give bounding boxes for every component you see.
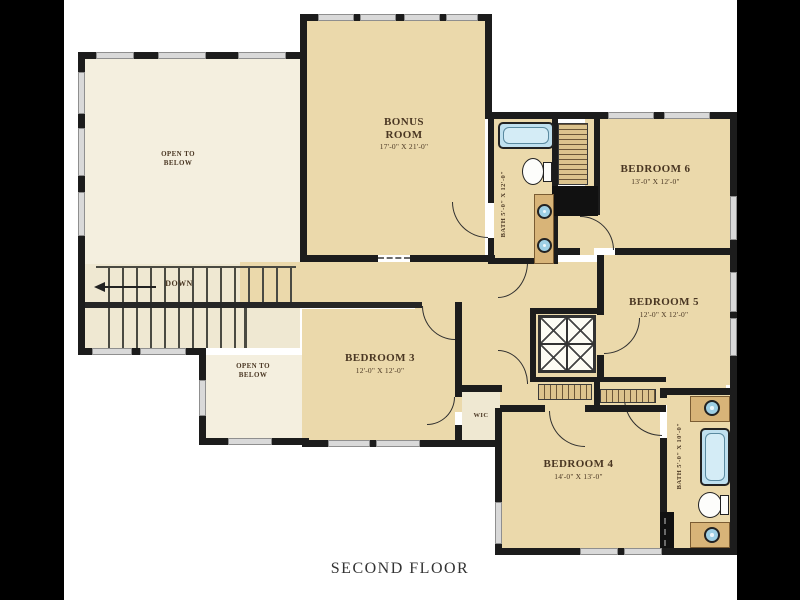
bathtub-icon (700, 428, 730, 486)
sink-icon (704, 400, 720, 416)
window-icon (624, 548, 662, 555)
opening-bonus-dashed (378, 257, 410, 259)
stairs-lower-run (96, 308, 244, 348)
bedroom6-dims: 13'-0" X 12'-0" (588, 177, 723, 186)
laundry-appliances (538, 315, 596, 373)
bath-bottom-label: BATH 5'-0" X 10'-0" (676, 414, 684, 498)
down-label: DOWN (158, 279, 200, 289)
linen-closet-shelves (558, 123, 588, 185)
toilet-icon (522, 158, 544, 185)
window-icon (318, 14, 354, 21)
window-icon (92, 348, 132, 355)
bedroom6-label: BEDROOM 6 13'-0" X 12'-0" (588, 163, 723, 186)
window-icon (78, 128, 85, 176)
plan-sheet: BONUS ROOM 17'-0" X 21'-0" OPEN TO BELOW… (64, 0, 737, 600)
opening-bath-dashed (664, 518, 666, 546)
wall-bath-top-left-upper (488, 119, 494, 203)
bath-top-label: BATH 5'-0" X 12'-0" (500, 162, 508, 246)
bedroom4-label: BEDROOM 4 14'-0" X 13'-0" (506, 458, 651, 481)
bedroom3-dims: 12'-0" X 12'-0" (310, 366, 450, 375)
bedroom3-name: BEDROOM 3 (310, 352, 450, 365)
window-icon (404, 14, 440, 21)
window-icon (158, 52, 206, 59)
bonus-room-dims: 17'-0" X 21'-0" (364, 142, 444, 151)
wic-label: WIC (466, 412, 496, 420)
window-icon (446, 14, 478, 21)
wall-bedroom4-top-right (585, 405, 666, 412)
bedroom4-dims: 14'-0" X 13'-0" (506, 472, 651, 481)
sink-icon (537, 238, 552, 253)
toilet-tank-icon (543, 162, 552, 182)
stair-railing (84, 302, 422, 308)
open-below-bottom-label: OPEN TO BELOW (230, 362, 276, 380)
window-icon (495, 502, 502, 544)
wall-laundry-top (530, 308, 600, 314)
wall-bonus-bottom-right (410, 255, 495, 262)
chase-block-bottom (660, 512, 674, 548)
bonus-room-label: BONUS ROOM 17'-0" X 21'-0" (364, 116, 444, 151)
window-icon (328, 440, 370, 447)
sink-icon (704, 527, 720, 543)
window-icon (608, 112, 654, 119)
window-icon (78, 192, 85, 236)
wall-bedroom3-right-lower (455, 425, 462, 447)
appliance-box-icon (567, 344, 594, 371)
bath-top-dims: 5'-0" X 12'-0" (500, 171, 507, 216)
bath-top-name: BATH (500, 218, 507, 238)
wall-bonus-bottom-left (300, 255, 378, 262)
wall-bedroom6-bottom-left (552, 248, 580, 255)
closet-shelf-left (538, 384, 592, 400)
wall-bedroom4-top-left (500, 405, 545, 412)
window-icon (730, 272, 737, 312)
wall-bonus-right (485, 14, 492, 119)
sink-icon (537, 204, 552, 219)
floor-plan-title: SECOND FLOOR (100, 560, 700, 578)
toilet-icon (698, 492, 722, 518)
down-arrow-shaft (104, 286, 156, 288)
window-icon (580, 548, 618, 555)
closet-shelf-right (600, 389, 656, 403)
appliance-box-icon (540, 344, 567, 371)
window-icon (376, 440, 420, 447)
window-icon (78, 72, 85, 114)
window-icon (228, 438, 272, 445)
bedroom3-label: BEDROOM 3 12'-0" X 12'-0" (310, 352, 450, 375)
appliance-box-icon (567, 317, 594, 344)
bedroom4-name: BEDROOM 4 (506, 458, 651, 471)
bedroom6-name: BEDROOM 6 (588, 163, 723, 176)
appliance-box-icon (540, 317, 567, 344)
chase-block-top (552, 186, 598, 216)
bathtub-icon (498, 122, 554, 149)
window-icon (140, 348, 186, 355)
toilet-tank-icon (720, 495, 729, 515)
wall-bedroom3-right-upper (455, 302, 462, 397)
wall-laundry-left (530, 308, 536, 382)
bath-bottom-name: BATH (676, 470, 683, 490)
bonus-room-name: BONUS ROOM (364, 116, 444, 141)
bath-bottom-dims: 5'-0" X 10'-0" (676, 423, 683, 468)
down-arrow-icon (94, 282, 105, 292)
window-icon (199, 380, 206, 416)
bedroom5-label: BEDROOM 5 12'-0" X 12'-0" (600, 296, 728, 319)
window-icon (238, 52, 286, 59)
wall-bath-bottom-top (660, 388, 737, 395)
window-icon (360, 14, 396, 21)
stair-edge-line (244, 308, 247, 348)
wall-bonus-left (300, 14, 307, 262)
wall-bedroom6-bottom-right (615, 248, 737, 255)
wall-wic-top (455, 385, 502, 392)
wall-bath-top-left-lower (488, 238, 494, 264)
open-below-top-label: OPEN TO BELOW (156, 150, 200, 168)
window-icon (730, 318, 737, 356)
window-icon (730, 196, 737, 240)
window-icon (664, 112, 710, 119)
floor-plan-page: BONUS ROOM 17'-0" X 21'-0" OPEN TO BELOW… (0, 0, 800, 600)
bedroom5-name: BEDROOM 5 (600, 296, 728, 309)
bedroom5-dims: 12'-0" X 12'-0" (600, 310, 728, 319)
window-icon (96, 52, 134, 59)
